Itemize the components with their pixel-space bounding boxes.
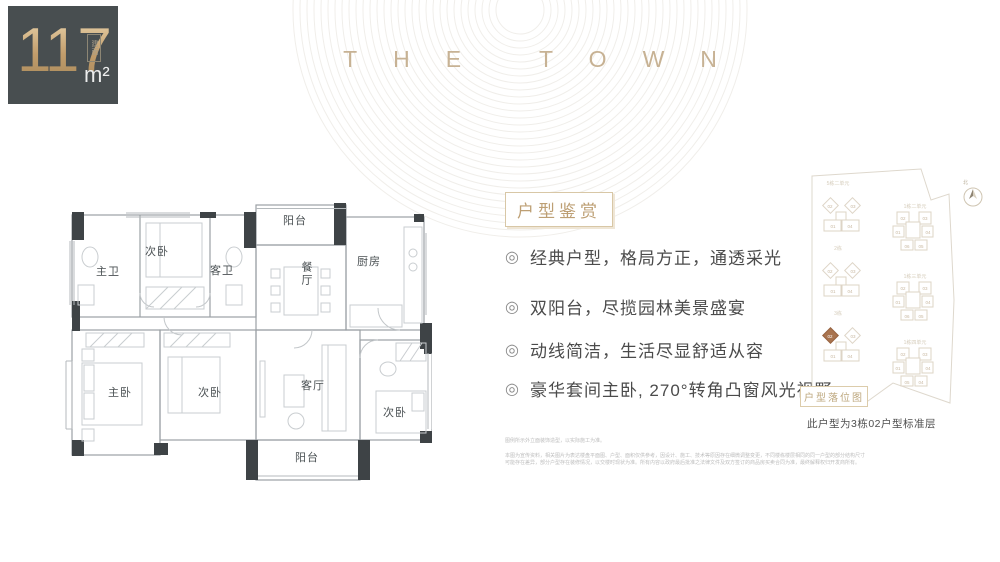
svg-text:04: 04 [847, 224, 853, 229]
left-buildings: 5栋二单元 02 03 01 04 2栋 02 03 [823, 180, 861, 361]
svg-text:01: 01 [895, 300, 901, 305]
svg-text:01: 01 [895, 366, 901, 371]
siteplan-caption-box: 户型落位图 [800, 386, 868, 407]
building-left-1: 5栋二单元 02 03 01 04 [823, 180, 861, 231]
svg-text:03: 03 [850, 269, 856, 274]
svg-text:01: 01 [830, 354, 836, 359]
room-label-bedroom-mid: 次卧 [198, 384, 222, 400]
svg-text:03: 03 [850, 204, 856, 209]
room-label-dining: 餐厅 [298, 261, 314, 287]
svg-text:02: 02 [900, 216, 906, 221]
svg-text:06: 06 [904, 244, 910, 249]
svg-text:01: 01 [830, 224, 836, 229]
area-unit: m² [84, 62, 110, 88]
svg-text:05: 05 [918, 244, 924, 249]
building-right-1: 1栋二单元 02 03 01 04 06 05 [893, 203, 933, 250]
feature-text-4: 豪华套间主卧, 270°转角凸窗风光视野 [530, 376, 833, 401]
right-buildings: 1栋二单元 02 03 01 04 06 05 1栋三单元 [893, 203, 933, 386]
room-label-bedroom-master: 主卧 [108, 384, 132, 400]
svg-text:5栋二单元: 5栋二单元 [827, 180, 850, 187]
windows [66, 209, 432, 477]
feature-bullet-2: ◎ 双阳台，尽揽园林美景盛宴 [505, 294, 746, 319]
area-prefix: 建面 [89, 40, 99, 56]
bullet-icon: ◎ [505, 379, 520, 399]
room-label-bath-guest: 客卫 [210, 262, 234, 278]
svg-text:03: 03 [922, 352, 928, 357]
svg-text:3栋: 3栋 [834, 310, 842, 317]
svg-text:2栋: 2栋 [834, 245, 842, 252]
room-label-balcony-bottom: 阳台 [295, 449, 319, 465]
building-right-2: 1栋三单元 02 03 01 04 06 05 [893, 273, 933, 320]
wall-piers [72, 203, 432, 480]
svg-text:1栋四单元: 1栋四单元 [904, 339, 927, 346]
door-arcs [140, 293, 400, 358]
compass-icon: 北 [963, 179, 982, 206]
feature-text-2: 双阳台，尽揽园林美景盛宴 [530, 294, 746, 319]
svg-text:06: 06 [904, 314, 910, 319]
siteplan-note: 此户型为3栋02户型标准层 [807, 416, 936, 431]
building-left-2: 2栋 02 03 01 04 [823, 245, 861, 296]
svg-text:1栋三单元: 1栋三单元 [904, 273, 927, 280]
svg-text:04: 04 [925, 366, 931, 371]
area-prefix-box: 建面 [87, 34, 101, 62]
area-badge: 117 建面 m² [8, 6, 118, 104]
siteplan-map: 北 5栋二单元 02 03 01 04 2栋 [793, 168, 993, 418]
svg-text:01: 01 [830, 289, 836, 294]
room-label-bedroom-right: 次卧 [383, 404, 407, 420]
svg-text:04: 04 [925, 230, 931, 235]
disclaimer-line1: 图例所示外立面装饰造型，以实际施工为准。 [505, 437, 867, 444]
svg-text:04: 04 [925, 300, 931, 305]
svg-text:04: 04 [847, 289, 853, 294]
brand-title: THE TOWN [190, 46, 870, 73]
room-label-balcony-top: 阳台 [283, 212, 307, 228]
svg-text:03: 03 [922, 286, 928, 291]
page: 117 建面 m² THE TOWN [0, 0, 1000, 562]
bullet-icon: ◎ [505, 247, 520, 267]
features-heading: 户型鉴赏 [517, 202, 601, 221]
svg-text:01: 01 [895, 230, 901, 235]
compass-north-label: 北 [963, 179, 968, 186]
disclaimer: 图例所示外立面装饰造型，以实际施工为准。 本图为宣传资料，相关图片为表达楼盘平面… [505, 437, 867, 466]
svg-text:05: 05 [904, 380, 910, 385]
feature-bullet-1: ◎ 经典户型，格局方正，通透采光 [505, 244, 782, 269]
highlighted-unit-label: 02 [827, 334, 833, 339]
feature-bullet-3: ◎ 动线简洁，生活尽显舒适从容 [505, 337, 764, 362]
room-label-bath-master: 主卫 [96, 263, 120, 279]
building-left-3: 3栋 02 03 01 04 [823, 310, 861, 361]
disclaimer-paragraph: 本图为宣传资料，相关图片为表达楼盘平面图、户型、面积仅供参考，因设计、施工、技术… [505, 453, 867, 466]
floorplan-drawing [60, 193, 432, 481]
feature-text-1: 经典户型，格局方正，通透采光 [530, 244, 782, 269]
svg-text:02: 02 [900, 352, 906, 357]
svg-text:03: 03 [850, 334, 856, 339]
bullet-icon: ◎ [505, 340, 520, 360]
svg-text:02: 02 [900, 286, 906, 291]
feature-bullet-4: ◎ 豪华套间主卧, 270°转角凸窗风光视野 [505, 376, 833, 401]
svg-text:03: 03 [922, 216, 928, 221]
svg-text:02: 02 [827, 269, 833, 274]
bullet-icon: ◎ [505, 297, 520, 317]
svg-text:02: 02 [827, 204, 833, 209]
room-label-kitchen: 厨房 [357, 253, 381, 269]
svg-text:04: 04 [918, 380, 924, 385]
room-label-bedroom-top: 次卧 [145, 243, 169, 259]
room-label-living: 客厅 [301, 377, 325, 393]
feature-text-3: 动线简洁，生活尽显舒适从容 [530, 337, 764, 362]
building-right-3: 1栋四单元 02 03 01 04 05 04 [893, 339, 933, 386]
siteplan-caption: 户型落位图 [804, 389, 864, 404]
svg-text:05: 05 [918, 314, 924, 319]
svg-text:04: 04 [847, 354, 853, 359]
features-heading-box: 户型鉴赏 [505, 192, 613, 227]
floorplan: 阳台 次卧 主卫 客卫 餐厅 厨房 主卧 次卧 客厅 次卧 阳台 [60, 193, 432, 481]
svg-text:1栋二单元: 1栋二单元 [904, 203, 927, 210]
